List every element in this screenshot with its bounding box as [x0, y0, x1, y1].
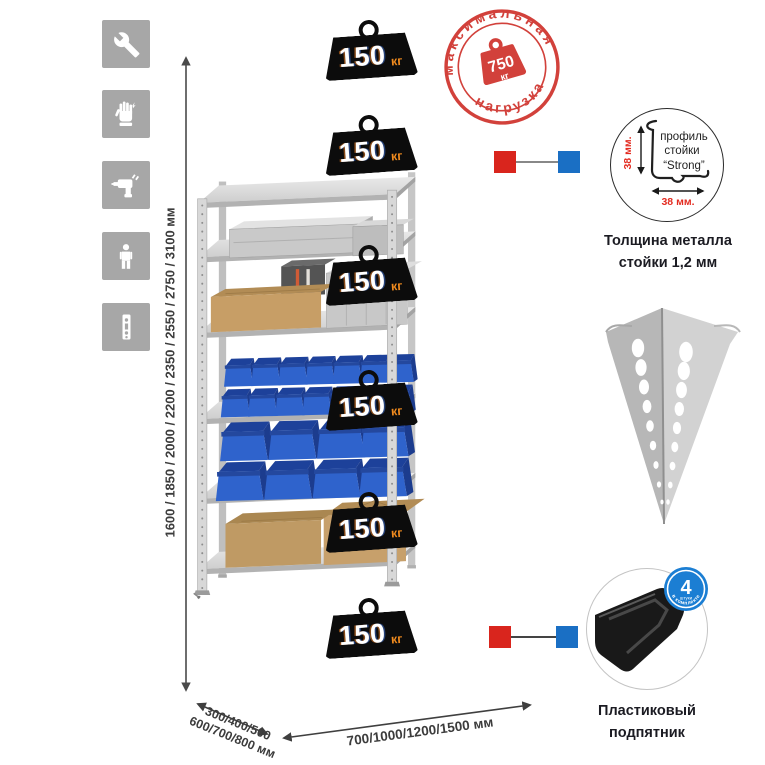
shelf-load-badge: 150кг: [322, 242, 418, 306]
gloves-icon: [102, 90, 150, 138]
load-value: 150: [338, 618, 387, 652]
callout-marker-red-bottom: [489, 626, 511, 648]
load-unit: кг: [390, 631, 402, 646]
load-value: 150: [338, 390, 387, 424]
load-value: 150: [338, 512, 387, 546]
profile-caption-line2: стойки 1,2 мм: [594, 252, 742, 274]
post-profile-detail: 38 мм. 38 мм. профиль стойки “Strong”: [610, 108, 724, 222]
shelf-load-badge: 150кг: [322, 367, 418, 431]
callout-line-bottom: [511, 636, 557, 638]
shelf-load-badge: 150кг: [322, 595, 418, 659]
included-count-badge: 4 штуки в комплекте: [663, 566, 709, 612]
person-icon: [102, 232, 150, 280]
profile-dim-vertical: 38 мм.: [622, 136, 634, 169]
height-dimension-label: 1600 / 1850 / 2000 / 2200 / 2350 / 2550 …: [163, 53, 178, 693]
load-value: 150: [338, 135, 387, 169]
shelf-load-badge: 150кг: [322, 489, 418, 553]
wrench-icon: [102, 20, 150, 68]
large-blue-bins: [214, 418, 416, 502]
drill-icon: [102, 161, 150, 209]
rack-post-icon: [102, 303, 150, 351]
profile-label-1: профиль: [660, 131, 708, 143]
callout-marker-blue-top: [558, 151, 580, 173]
foot-caption: Пластиковый подпятник: [582, 700, 712, 745]
profile-label-3: “Strong”: [663, 160, 705, 172]
load-value: 150: [338, 40, 387, 74]
callout-marker-blue-bottom: [556, 626, 578, 648]
shelf-load-badge: 150кг: [322, 112, 418, 176]
svg-text:нагрузка: нагрузка: [470, 74, 553, 125]
profile-dim-horizontal: 38 мм.: [661, 196, 694, 208]
callout-line-top: [516, 161, 560, 163]
perforated-post-image: [598, 296, 748, 536]
load-value: 150: [338, 265, 387, 299]
stamp-arc-bottom: нагрузка: [470, 74, 553, 125]
load-unit: кг: [390, 148, 402, 163]
profile-caption: Толщина металла стойки 1,2 мм: [594, 230, 742, 275]
shelf-load-badge: 150кг: [322, 17, 418, 81]
foot-caption-line2: подпятник: [582, 722, 712, 744]
foot-caption-line1: Пластиковый: [582, 700, 712, 722]
product-infographic: 1600 / 1850 / 2000 / 2200 / 2350 / 2550 …: [0, 0, 765, 765]
load-unit: кг: [390, 53, 402, 68]
load-unit: кг: [390, 403, 402, 418]
load-unit: кг: [390, 278, 402, 293]
profile-caption-line1: Толщина металла: [594, 230, 742, 252]
load-unit: кг: [390, 525, 402, 540]
profile-label-2: стойки: [664, 145, 699, 157]
callout-marker-red-top: [494, 151, 516, 173]
